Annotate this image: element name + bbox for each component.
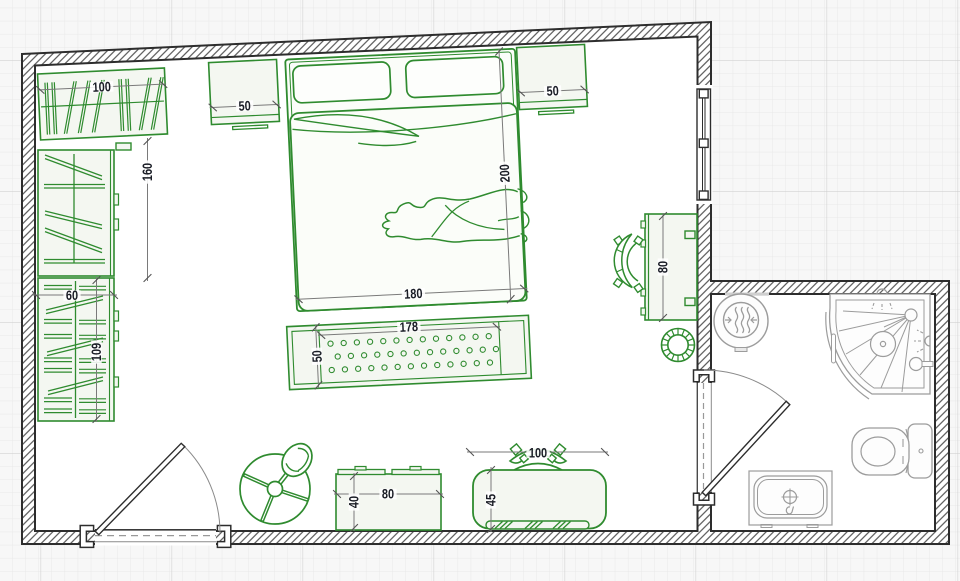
svg-text:109: 109 (89, 343, 104, 361)
svg-text:45: 45 (484, 494, 499, 507)
svg-text:60: 60 (66, 288, 78, 303)
svg-text:160: 160 (140, 163, 155, 181)
svg-text:100: 100 (92, 79, 111, 95)
svg-text:100: 100 (529, 446, 547, 461)
svg-text:40: 40 (347, 496, 362, 508)
svg-text:50: 50 (309, 350, 325, 363)
svg-text:200: 200 (497, 164, 513, 183)
svg-text:50: 50 (546, 83, 559, 99)
svg-text:80: 80 (382, 487, 394, 502)
svg-text:50: 50 (238, 98, 251, 114)
svg-text:178: 178 (399, 319, 418, 335)
svg-text:80: 80 (656, 261, 671, 273)
svg-text:180: 180 (404, 286, 423, 302)
